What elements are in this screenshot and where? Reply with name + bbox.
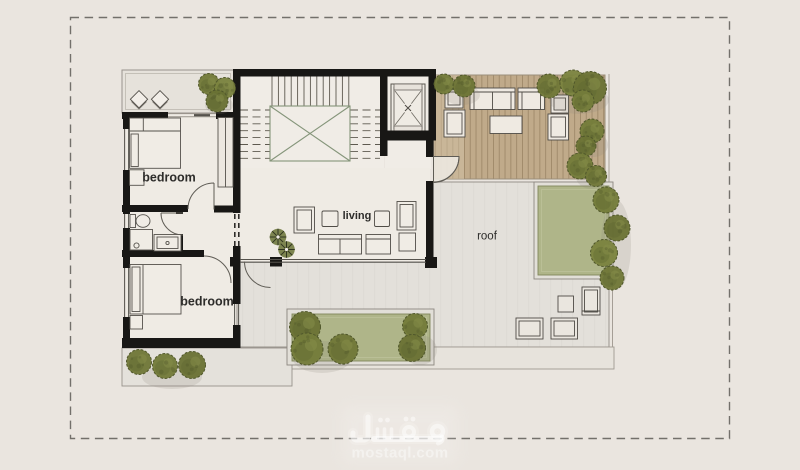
svg-text:bedroom: bedroom [180, 295, 233, 309]
svg-text:bedroom: bedroom [142, 171, 195, 185]
svg-text:roof: roof [477, 231, 498, 243]
svg-text:living: living [343, 210, 372, 222]
svg-text:mostaql.com: mostaql.com [352, 445, 449, 462]
